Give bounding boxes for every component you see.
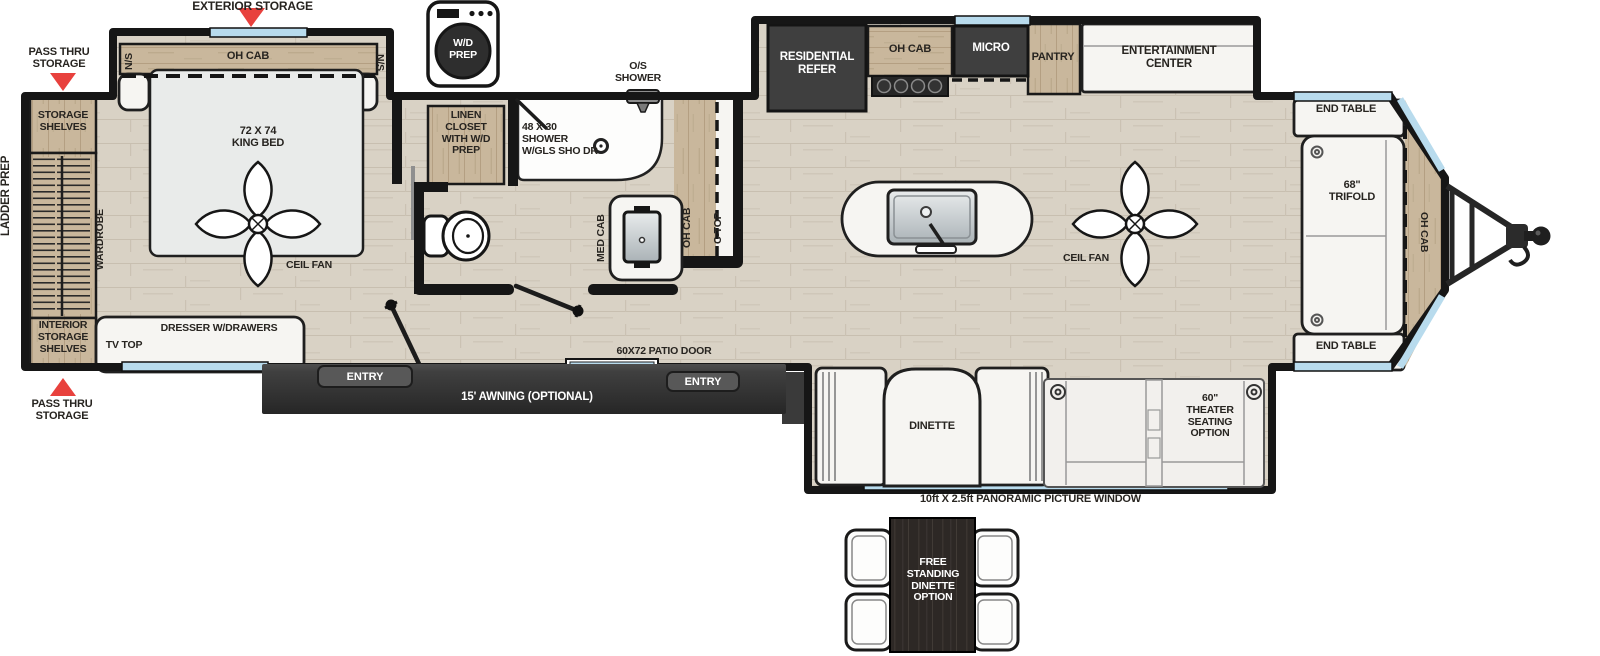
tv-top-label: TV TOP (99, 340, 149, 352)
nightstand-right-label: N/S (370, 41, 385, 83)
wardrobe-label: WARDROBE (95, 194, 111, 286)
entry-right-tab: ENTRY (666, 371, 740, 392)
pass-thru-storage-bottom-label: PASS THRU STORAGE (16, 398, 108, 423)
toilet (424, 212, 489, 260)
nightstand-left-label: N/S (124, 41, 139, 83)
pass-thru-bottom-arrow (50, 378, 76, 396)
ladder-prep-label: LADDER PREP (0, 96, 16, 296)
pantry-label: PANTRY (1024, 51, 1082, 63)
refer-label: RESIDENTIAL REFER (768, 51, 866, 77)
awning-label: 15' AWNING (OPTIONAL) (427, 391, 627, 404)
c-top-label: C-TOP (713, 196, 728, 260)
pass-thru-top-arrow (50, 73, 76, 91)
island-sink (888, 190, 976, 253)
micro-label: MICRO (954, 42, 1028, 55)
living-ceil-fan-label: CEIL FAN (1053, 253, 1119, 265)
interior-storage-shelves-label: INTERIOR STORAGE SHELVES (29, 320, 97, 355)
panoramic-window-label: 10ft X 2.5ft PANORAMIC PICTURE WINDOW (878, 493, 1183, 505)
trifold-label: 68" TRIFOLD (1310, 179, 1394, 204)
hitch-coupler (1506, 224, 1551, 265)
kitchen-oh-cab-label: OH CAB (868, 43, 952, 55)
med-cab-label: MED CAB (596, 208, 611, 268)
bedroom-ceil-fan-label: CEIL FAN (277, 260, 341, 272)
os-shower-label: O/S SHOWER (605, 61, 671, 85)
pass-thru-storage-top-label: PASS THRU STORAGE (14, 46, 104, 71)
trifold-sofa (1302, 136, 1404, 334)
king-bed-label: 72 X 74 KING BED (206, 125, 310, 150)
end-table-bottom-label: END TABLE (1294, 340, 1398, 352)
entertainment-center-label: ENTERTAINMENT CENTER (1088, 45, 1250, 71)
entry-left-tab: ENTRY (317, 365, 413, 388)
counter-edge-wall (733, 98, 743, 262)
wd-prep-label: W/D PREP (437, 38, 489, 62)
end-table-top-label: END TABLE (1294, 103, 1398, 115)
dinette-label: DINETTE (898, 420, 966, 432)
shower-label: 48 X 30 SHOWER W/GLS SHO DR (522, 122, 640, 157)
theater-seating-label: 60" THEATER SEATING OPTION (1160, 393, 1260, 440)
storage-shelves-label: STORAGE SHELVES (31, 110, 95, 134)
vanity-sink (624, 206, 660, 268)
dresser-label: DRESSER W/DRAWERS (146, 323, 292, 335)
patio-door-label: 60X72 PATIO DOOR (598, 346, 730, 358)
exterior-storage-label: EXTERIOR STORAGE (175, 0, 330, 13)
hitch-a-frame (1447, 186, 1516, 284)
bedroom-oh-cab-label: OH CAB (198, 50, 298, 62)
free-standing-dinette-label: FREE STANDING DINETTE OPTION (894, 557, 972, 604)
rv-floorplan: EXTERIOR STORAGE PASS THRU STORAGE LADDE… (0, 0, 1600, 656)
front-oh-cab-label: OH CAB (1413, 200, 1429, 264)
counter-oh-cab-label: OH CAB (682, 194, 698, 262)
linen-closet-label: LINEN CLOSET WITH W/D PREP (429, 110, 503, 157)
